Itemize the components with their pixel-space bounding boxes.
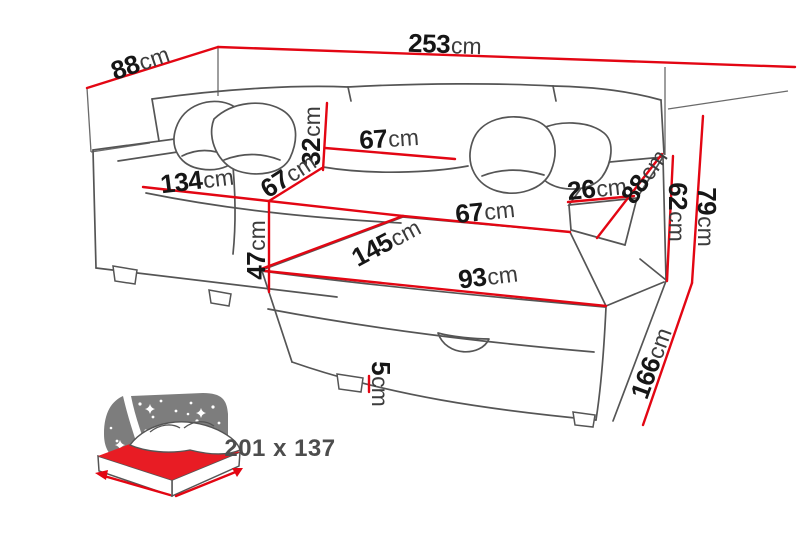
dim-unit: cm [246,220,269,251]
dim-value: 26 [566,175,596,204]
sleeping-area-size: 201 x 137 [224,435,335,463]
dim-unit: cm [486,262,519,289]
dim-armrest-height: 62cm [665,182,691,242]
sleeping-function-icon [95,393,243,496]
dim-height-overall: 79cm [694,187,720,247]
dim-backrest-cushion-width: 67cm [358,123,419,153]
dim-unit: cm [483,198,516,224]
dim-value: 93 [457,263,488,292]
dim-value: 62 [665,182,691,210]
dim-unit: cm [451,34,482,58]
dim-unit: cm [665,211,688,242]
dim-leg-height: 5cm [368,361,394,407]
dim-value: 67 [454,198,484,227]
dim-unit: cm [202,166,235,193]
dim-chaise-seat-width: 67cm [454,195,516,227]
dim-unit: cm [368,376,391,407]
dim-width-overall: 253cm [408,30,482,59]
dim-unit: cm [387,126,419,151]
dim-unit: cm [301,106,324,137]
dim-unit: cm [694,216,717,247]
dim-value: 5 [368,361,394,375]
dim-value: 47 [243,252,269,280]
dim-seat-height: 47cm [243,220,269,280]
chaise-outline [262,217,664,420]
dim-value: 134 [159,166,204,197]
dim-value: 67 [358,125,388,153]
dim-value: 79 [694,187,720,215]
dim-value: 253 [408,30,451,57]
sofa-dimension-diagram: 88cm 253cm 32cm 67cm 67cm 134cm 47cm 145… [0,0,800,533]
